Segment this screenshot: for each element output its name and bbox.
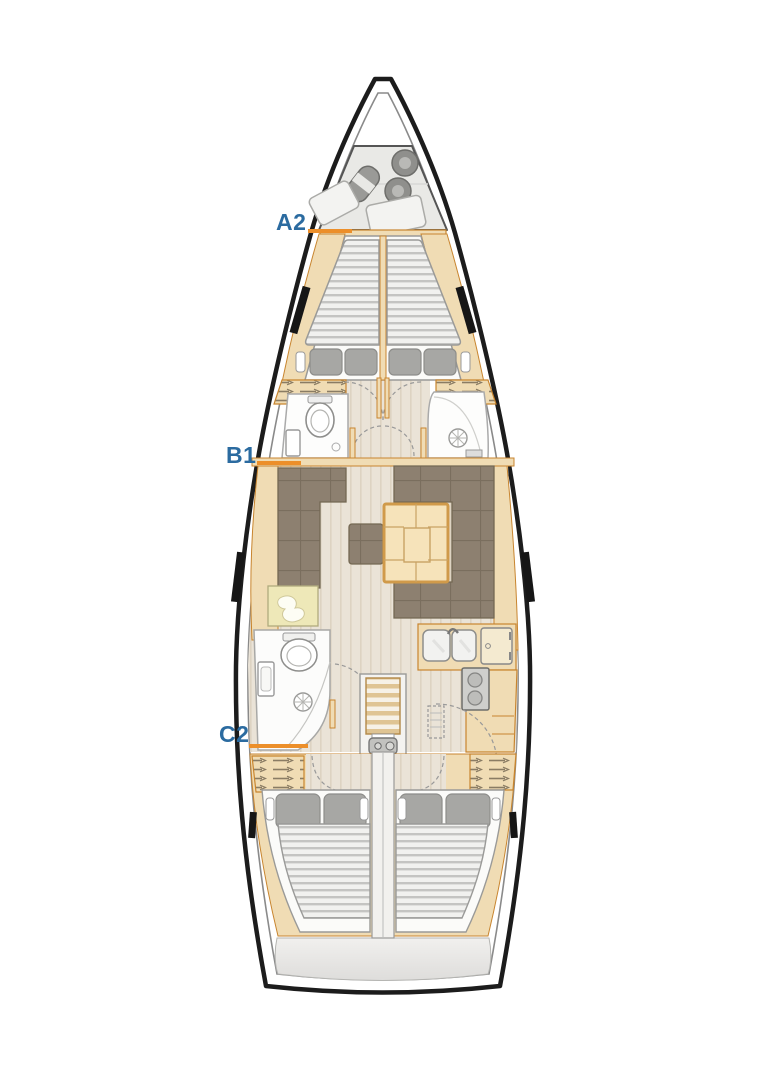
aft-head-door (330, 700, 335, 728)
yacht-layout-plan: A2 B1 C2 (0, 0, 764, 1080)
shower-step (466, 450, 482, 457)
mast-post (385, 378, 389, 418)
boat-floorplan-drawing (0, 0, 764, 1080)
aft-cabins (250, 752, 516, 938)
c2-leader-line (249, 744, 308, 748)
stove-icon (462, 668, 489, 710)
starboard-vent-locker (470, 754, 516, 790)
head-door (350, 428, 355, 458)
reading-light-icon (461, 352, 470, 372)
vberth-center-divider (380, 236, 386, 380)
shower-door (421, 428, 426, 458)
forward-shower (421, 392, 488, 458)
port-vent-locker (252, 756, 304, 792)
cabin-label-b1[interactable]: B1 (226, 444, 256, 467)
reading-light-icon (398, 798, 406, 820)
mast-post (377, 378, 381, 418)
b1-leader-line (257, 461, 301, 465)
forward-head (282, 394, 355, 458)
starboard-cabin-entry-floor (394, 754, 446, 790)
cabin-label-a2[interactable]: A2 (276, 211, 306, 234)
dinette-table (384, 504, 448, 582)
reading-light-icon (296, 352, 305, 372)
cabin-label-c2[interactable]: C2 (219, 723, 249, 746)
sink-bowl (261, 667, 271, 691)
toilet-tank (308, 396, 332, 403)
stern-lazarette (275, 938, 491, 981)
reading-light-icon (492, 798, 500, 820)
reading-light-icon (360, 798, 368, 820)
sink-icon (286, 430, 300, 456)
reading-light-icon (266, 798, 274, 820)
companionway-steps (366, 678, 400, 734)
salon-stool (349, 524, 383, 564)
a2-leader-line (308, 229, 352, 233)
